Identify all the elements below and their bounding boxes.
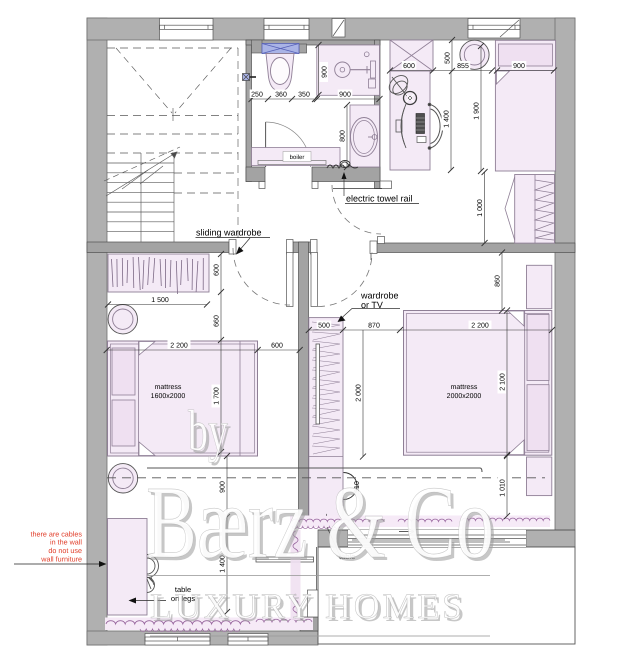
svg-text:2 000: 2 000 [356,384,363,402]
svg-text:600: 600 [214,264,221,276]
svg-text:600: 600 [403,63,415,70]
svg-text:870: 870 [368,323,380,330]
svg-text:600: 600 [271,343,283,350]
svg-text:wall furniture: wall furniture [40,555,82,564]
svg-text:mattress: mattress [451,384,478,391]
svg-text:electric towel rail: electric towel rail [346,194,413,204]
svg-text:900: 900 [339,92,351,99]
svg-text:2000x2000: 2000x2000 [447,393,482,400]
svg-text:360: 360 [275,92,287,99]
svg-text:2 200: 2 200 [170,343,188,350]
svg-text:860: 860 [495,275,502,287]
svg-text:500: 500 [445,52,452,64]
svg-text:855: 855 [457,63,469,70]
svg-text:1 900: 1 900 [474,102,481,120]
svg-text:900: 900 [322,66,329,78]
svg-text:500: 500 [318,323,330,330]
svg-text:wardrobe: wardrobe [360,291,399,301]
svg-text:250: 250 [251,92,263,99]
svg-text:1 010: 1 010 [500,479,507,497]
svg-text:by: by [188,398,228,463]
svg-text:350: 350 [298,92,310,99]
svg-text:800: 800 [340,130,347,142]
svg-text:1 400: 1 400 [444,110,451,128]
svg-text:660: 660 [214,315,221,327]
svg-text:mattress: mattress [155,384,182,391]
svg-text:sliding wardrobe: sliding wardrobe [196,228,262,238]
svg-text:Bærz & Co: Bærz & Co [146,465,494,580]
svg-text:1 000: 1 000 [477,199,484,217]
svg-text:2 100: 2 100 [500,373,507,391]
svg-text:2 200: 2 200 [471,323,489,330]
svg-text:boiler: boiler [290,154,305,161]
svg-text:1 500: 1 500 [151,297,169,304]
svg-text:1600x2000: 1600x2000 [151,393,186,400]
svg-text:900: 900 [513,63,525,70]
